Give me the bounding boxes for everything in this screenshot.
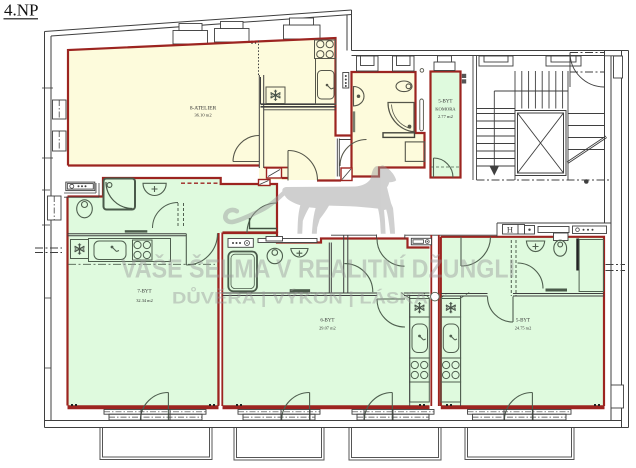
svg-text:7-BYT: 7-BYT — [137, 290, 151, 295]
svg-text:29.07 m2: 29.07 m2 — [319, 326, 336, 331]
svg-text:4.NP: 4.NP — [4, 1, 38, 20]
svg-text:5-BYT: 5-BYT — [438, 100, 452, 105]
svg-text:32.34 m2: 32.34 m2 — [136, 298, 153, 303]
svg-text:8-ATELIER: 8-ATELIER — [190, 106, 217, 112]
svg-text:24.75 m2: 24.75 m2 — [515, 326, 532, 331]
svg-text:DŮVĚRA | VÝKON | LÁSKA: DŮVĚRA | VÝKON | LÁSKA — [172, 288, 428, 308]
svg-text:VAŠE ŠELMA V REALITNÍ DŽUNGLI: VAŠE ŠELMA V REALITNÍ DŽUNGLI — [121, 254, 515, 284]
svg-text:2.77 m2: 2.77 m2 — [438, 114, 454, 119]
svg-text:H: H — [507, 225, 513, 235]
svg-text:KOMORA: KOMORA — [435, 107, 456, 112]
svg-text:36.10 m2: 36.10 m2 — [194, 113, 212, 118]
svg-text:6-BYT: 6-BYT — [320, 319, 334, 324]
svg-text:5-BYT: 5-BYT — [516, 319, 530, 324]
